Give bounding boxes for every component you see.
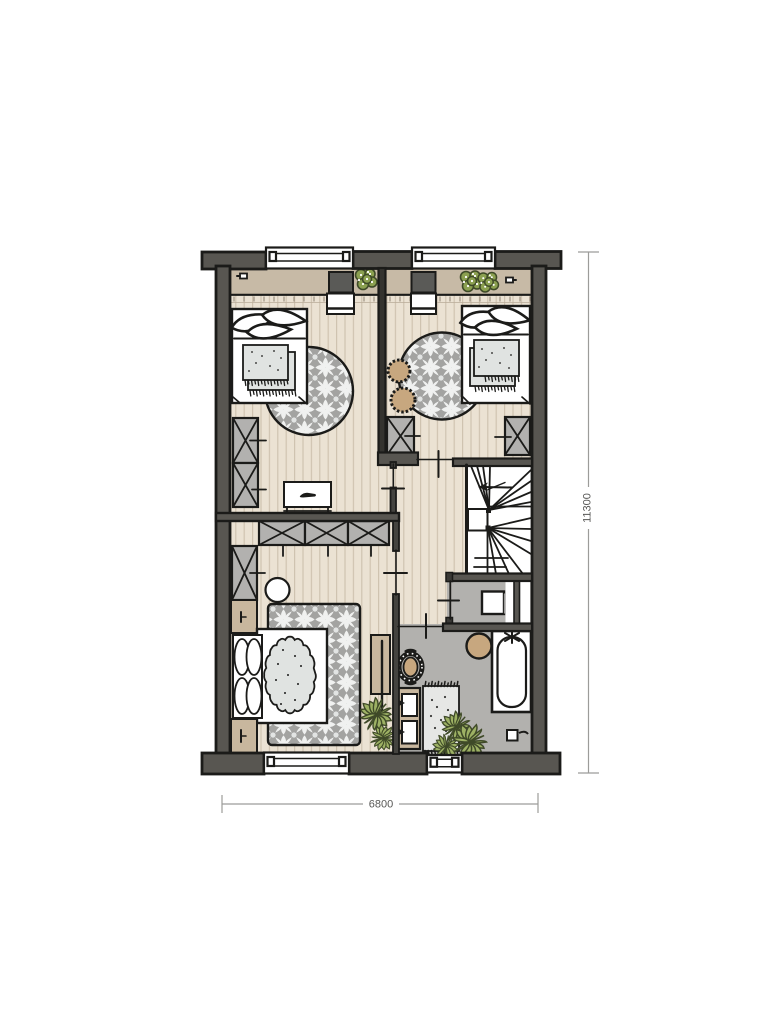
- svg-text:11300: 11300: [582, 493, 594, 523]
- svg-text:6800: 6800: [369, 799, 393, 811]
